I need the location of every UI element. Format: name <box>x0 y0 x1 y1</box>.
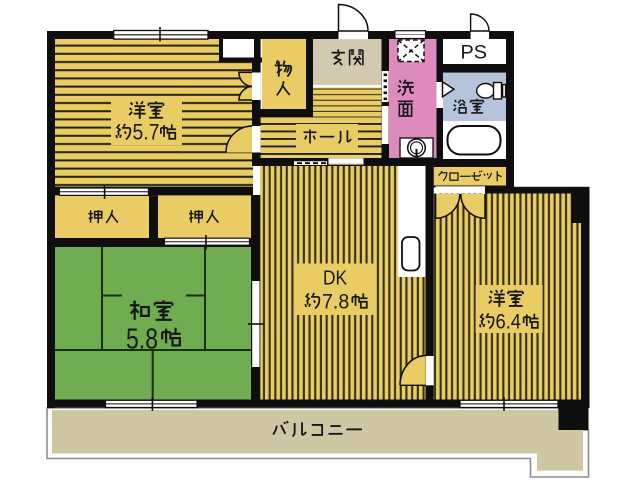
svg-text:5.8: 5.8 <box>126 324 158 356</box>
svg-text:5.7: 5.7 <box>133 120 160 145</box>
svg-text:6.4: 6.4 <box>496 310 522 334</box>
svg-text:DK: DK <box>323 266 347 289</box>
svg-text:7.8: 7.8 <box>322 289 349 313</box>
svg-text:PS: PS <box>461 41 488 63</box>
